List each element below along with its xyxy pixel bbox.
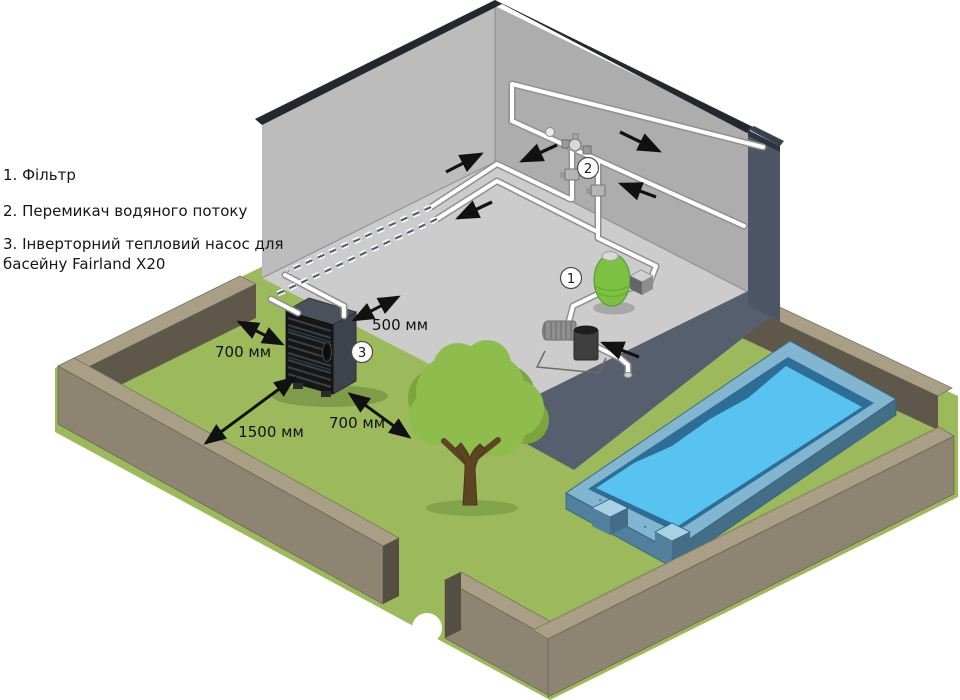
badge-flow-switch-number: 2 — [584, 161, 593, 177]
legend-item-heat-pump-line2: басейну Fairland X20 — [3, 254, 165, 274]
pump-pot-lid — [574, 326, 598, 335]
legend-item-heat-pump-line1: 3. Інверторний тепловий насос для — [3, 234, 283, 254]
valve-2 — [591, 185, 605, 196]
legend-item-flow-switch: 2. Перемикач водяного потоку — [3, 201, 247, 221]
filter-lid — [602, 252, 618, 261]
pipe-fitting — [546, 128, 555, 137]
badge-filter: 1 — [561, 268, 582, 289]
dimension-700mm-left-label: 700 мм — [215, 343, 271, 361]
switch-fitting-right — [583, 146, 591, 154]
badge-heat-pump-number: 3 — [358, 345, 367, 361]
legend-item-filter: 1. Фільтр — [3, 165, 76, 185]
valve-2-handle — [586, 188, 591, 194]
scene: 500 мм 700 мм 1500 мм 700 мм 1 2 3 — [0, 0, 960, 700]
dimension-700mm-right-label: 700 мм — [329, 414, 385, 432]
heat-pump-foot-left — [293, 383, 303, 389]
installation-diagram: 500 мм 700 мм 1500 мм 700 мм 1 2 3 1. — [0, 0, 960, 700]
dimension-500mm-label: 500 мм — [372, 316, 428, 334]
fence-gap-cap-right — [445, 572, 461, 638]
valve-1-handle — [560, 172, 565, 178]
fence-gap-cap-left — [383, 538, 399, 604]
badge-heat-pump: 3 — [352, 342, 373, 363]
flow-switch-ball — [569, 139, 581, 151]
badge-flow-switch: 2 — [578, 158, 599, 179]
gate-notch — [412, 613, 442, 643]
heat-pump-logo-badge — [323, 343, 332, 362]
pipe-open-end — [624, 373, 632, 378]
valve-1 — [565, 169, 579, 180]
badge-filter-number: 1 — [567, 271, 576, 287]
dimension-1500mm-label: 1500 мм — [238, 423, 304, 441]
exterior-column — [748, 130, 780, 322]
heat-pump-foot-right — [321, 391, 331, 397]
filter-tank — [594, 254, 630, 306]
